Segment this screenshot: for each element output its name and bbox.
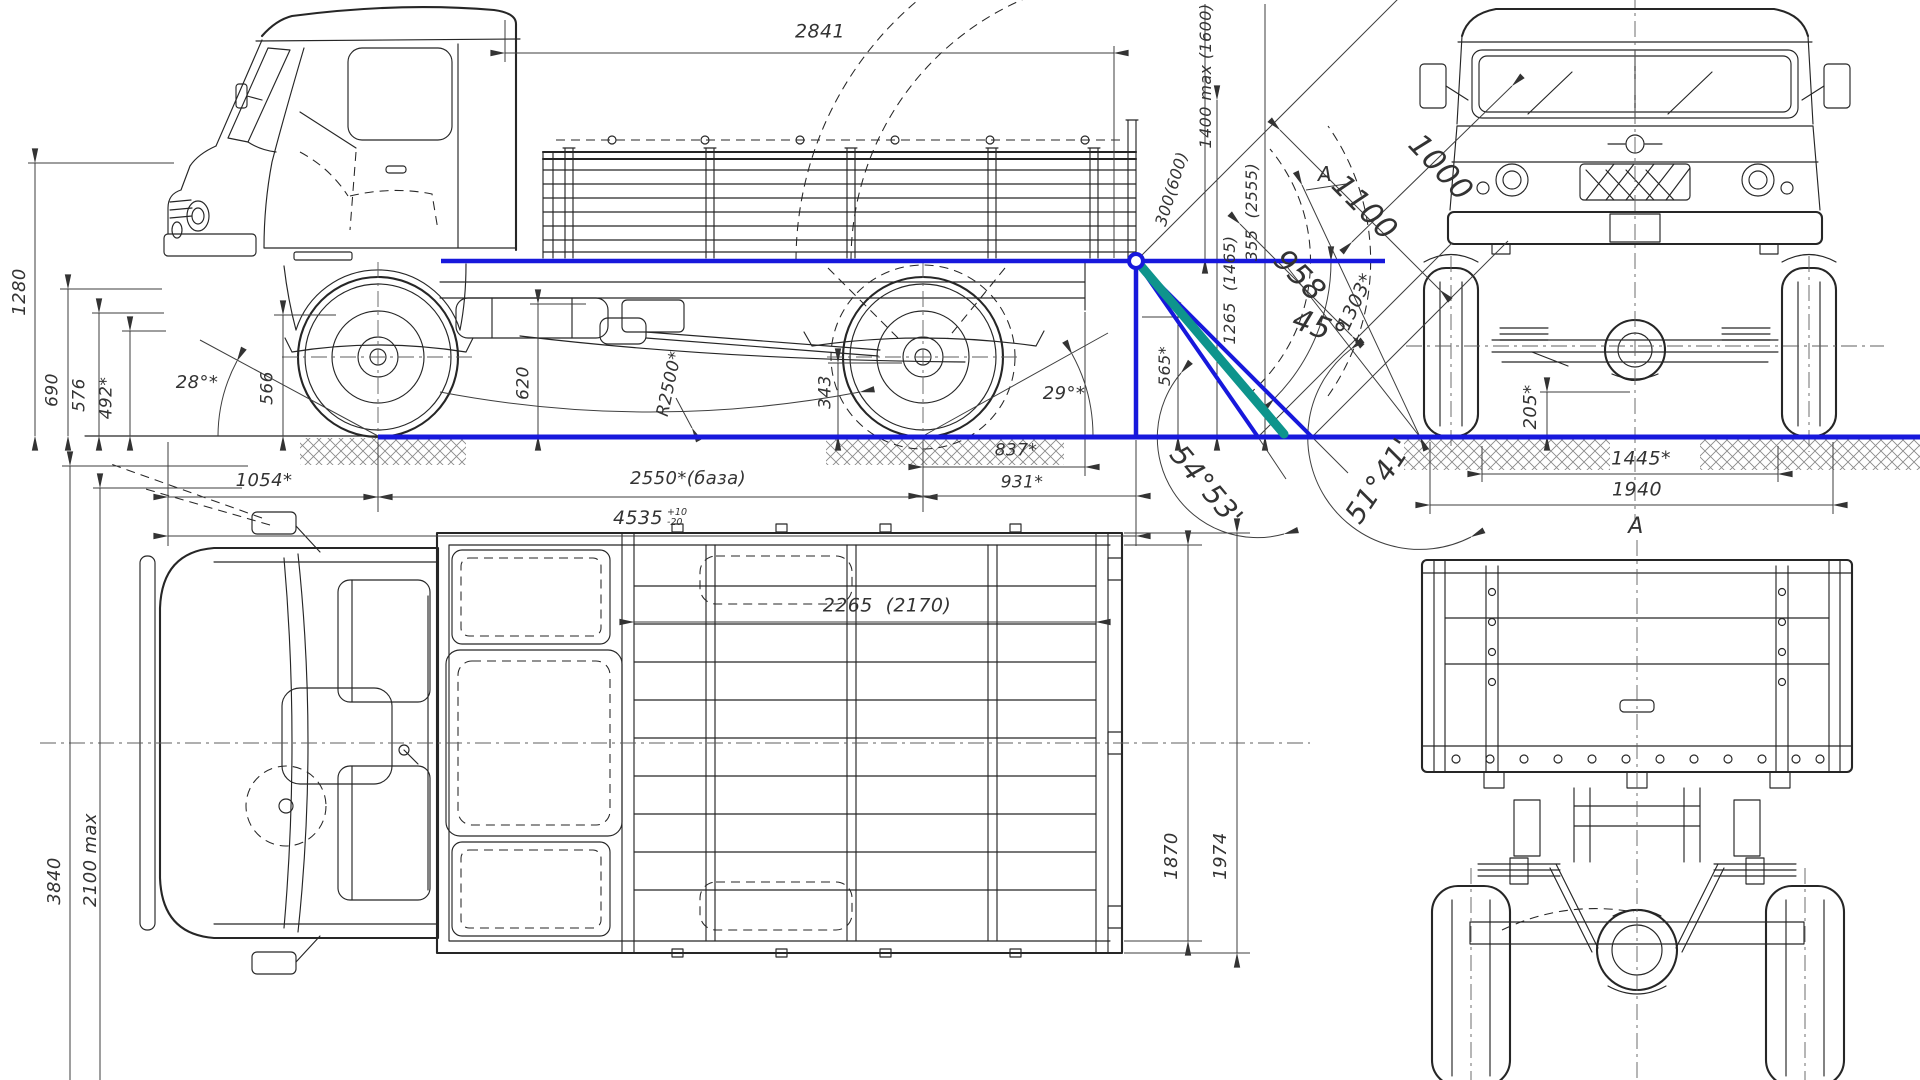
- top-view-art: [40, 463, 1310, 974]
- blueprint-canvas: 28411280690576492*28°*566620R2500*34329°…: [0, 0, 1920, 1080]
- reference-lines-blue: [378, 261, 1920, 437]
- pivot-point: [1129, 254, 1143, 268]
- rear-view-art: [1422, 540, 1852, 1080]
- loading-angle-lines-teal: [1141, 266, 1284, 434]
- ground-hatching: [300, 438, 1920, 470]
- truck-drawing-svg: [0, 0, 1920, 1080]
